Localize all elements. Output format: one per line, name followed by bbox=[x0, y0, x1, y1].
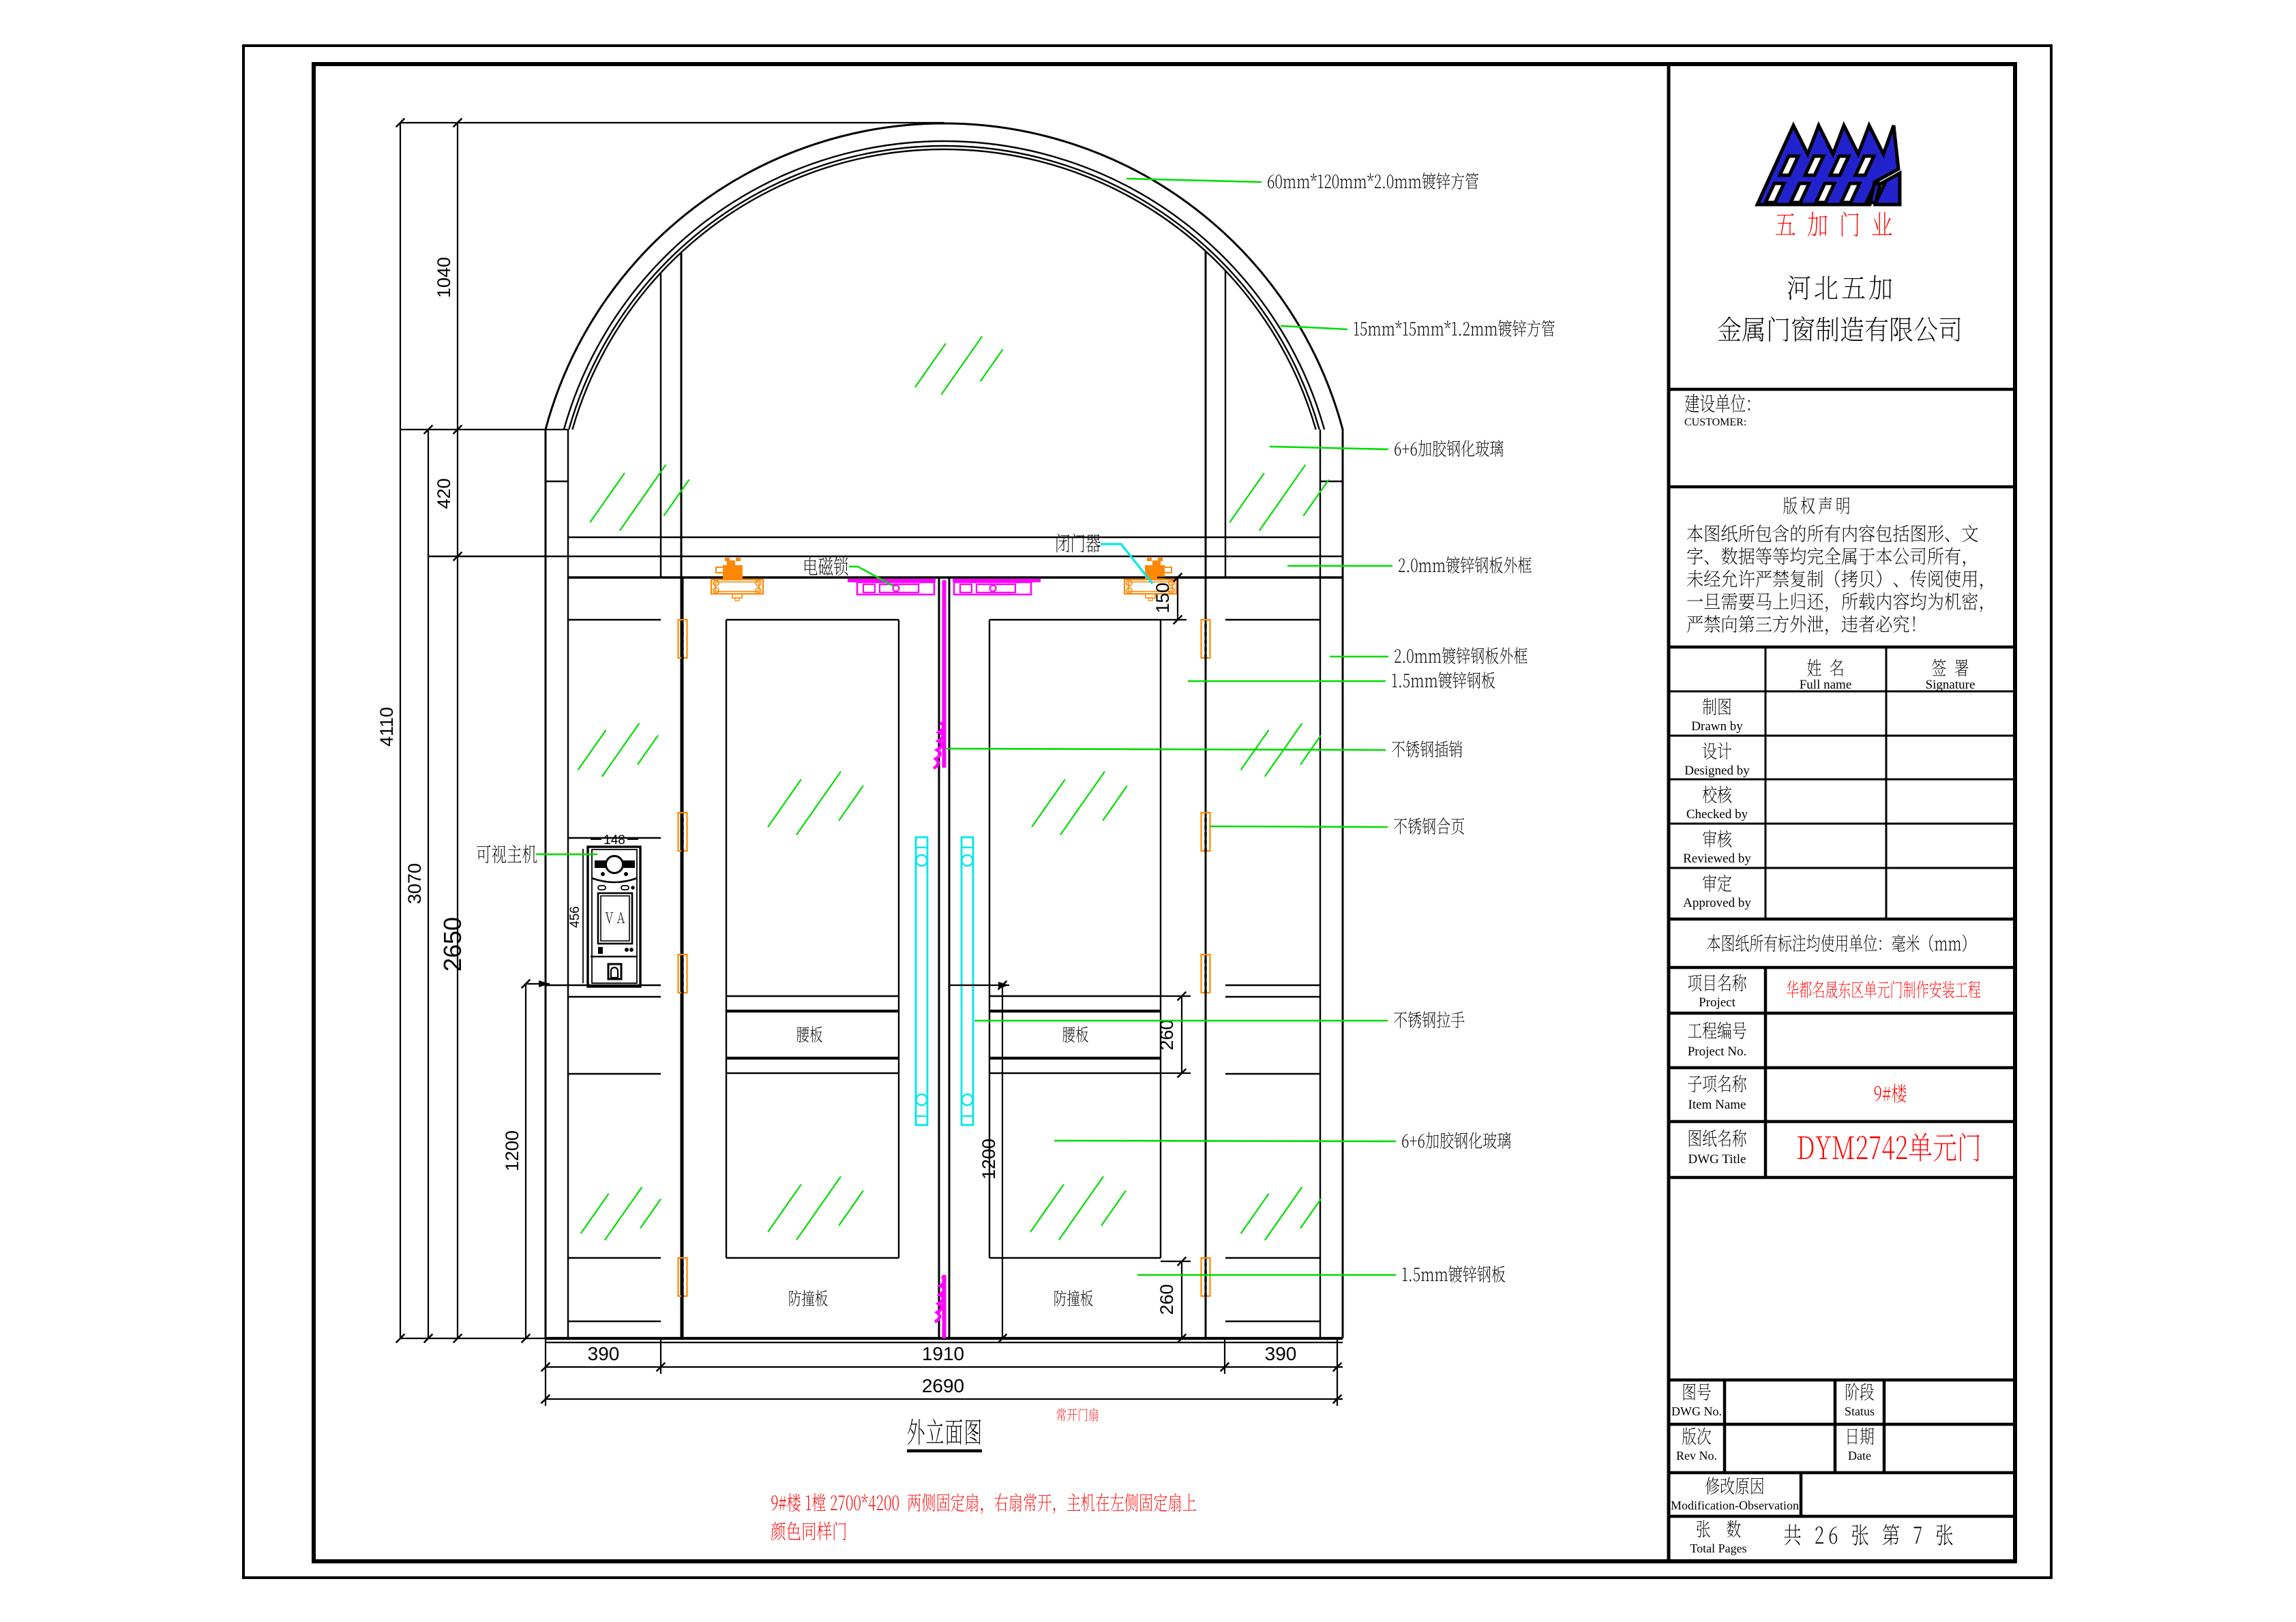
svg-text:Modification-Observation: Modification-Observation bbox=[1671, 1499, 1799, 1512]
svg-text:3070: 3070 bbox=[404, 863, 425, 904]
svg-text:456: 456 bbox=[568, 906, 582, 928]
svg-text:4110: 4110 bbox=[376, 707, 397, 747]
svg-text:148: 148 bbox=[603, 833, 625, 847]
svg-text:DWG No.: DWG No. bbox=[1671, 1405, 1722, 1418]
svg-text:390: 390 bbox=[588, 1343, 620, 1364]
svg-text:1040: 1040 bbox=[434, 257, 454, 298]
svg-text:Full name: Full name bbox=[1800, 678, 1852, 692]
svg-text:1200: 1200 bbox=[502, 1130, 522, 1171]
svg-text:2650: 2650 bbox=[438, 917, 466, 972]
svg-text:Reviewed by: Reviewed by bbox=[1683, 852, 1751, 866]
svg-text:Total Pages: Total Pages bbox=[1690, 1542, 1746, 1555]
svg-text:2690: 2690 bbox=[922, 1375, 964, 1396]
svg-text:Checked by: Checked by bbox=[1686, 807, 1748, 822]
svg-text:Approved by: Approved by bbox=[1683, 896, 1751, 910]
svg-text:Project: Project bbox=[1699, 995, 1736, 1010]
svg-text:Signature: Signature bbox=[1926, 678, 1976, 692]
svg-text:Item Name: Item Name bbox=[1688, 1098, 1746, 1112]
svg-text:Rev No.: Rev No. bbox=[1676, 1449, 1717, 1462]
svg-text:Date: Date bbox=[1848, 1449, 1871, 1462]
svg-text:420: 420 bbox=[434, 478, 454, 509]
svg-text:260: 260 bbox=[1157, 1019, 1177, 1050]
svg-text:DWG Title: DWG Title bbox=[1688, 1152, 1746, 1167]
svg-text:1200: 1200 bbox=[979, 1139, 999, 1180]
svg-text:Status: Status bbox=[1845, 1405, 1875, 1418]
svg-text:260: 260 bbox=[1157, 1284, 1177, 1315]
svg-text:CUSTOMER:: CUSTOMER: bbox=[1684, 417, 1746, 428]
svg-text:Drawn by: Drawn by bbox=[1691, 719, 1743, 734]
svg-text:390: 390 bbox=[1265, 1343, 1297, 1364]
svg-text:Project No.: Project No. bbox=[1688, 1045, 1747, 1059]
svg-text:Designed by: Designed by bbox=[1684, 764, 1750, 778]
svg-text:150: 150 bbox=[1152, 582, 1173, 613]
svg-text:1910: 1910 bbox=[922, 1343, 964, 1364]
